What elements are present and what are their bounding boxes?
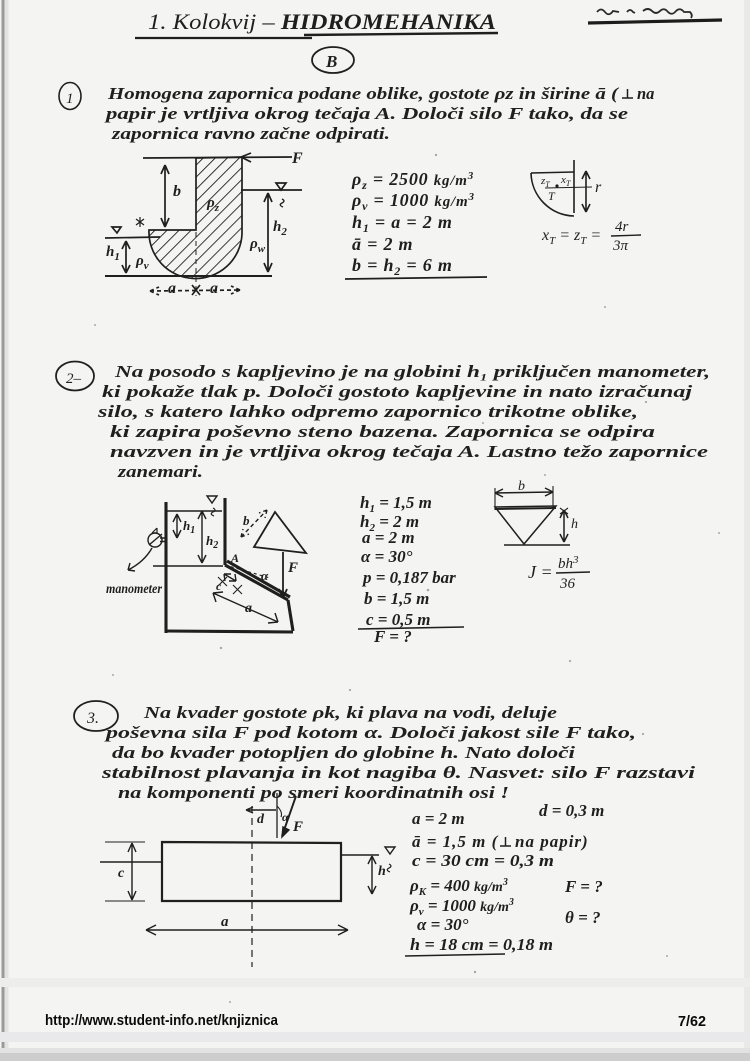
svg-text:3π: 3π (612, 238, 629, 254)
svg-text:papir je vrtljiva okrog tečaja: papir je vrtljiva okrog tečaja A. Določi… (103, 104, 628, 123)
svg-text:b: b (518, 479, 525, 494)
svg-text:manometer: manometer (106, 581, 163, 596)
svg-text:na papir): na papir) (515, 832, 589, 851)
svg-text:h: h (378, 864, 386, 879)
svg-text:stabilnost plavanja in kot nag: stabilnost plavanja in kot nagiba θ. Nas… (100, 763, 695, 782)
svg-text:zanemari.: zanemari. (117, 462, 203, 481)
svg-text:α = 30°: α = 30° (417, 915, 469, 934)
svg-text:F = ?: F = ? (564, 877, 603, 896)
svg-text:b: b (173, 183, 181, 200)
svg-text:ā = 2 m: ā = 2 m (352, 234, 413, 254)
svg-text:F: F (292, 819, 303, 835)
svg-text:poševna sila F pod kotom α. Do: poševna sila F pod kotom α. Določi jakos… (103, 723, 636, 742)
svg-text:F: F (287, 560, 298, 576)
svg-text:1: 1 (66, 91, 74, 107)
svg-text:a: a (221, 914, 229, 930)
svg-text:B: B (325, 52, 337, 71)
svg-text:J =: J = (528, 562, 553, 582)
svg-text:r: r (595, 179, 602, 196)
svg-text:Homogena zapornica podane obli: Homogena zapornica podane oblike, gostot… (107, 84, 620, 103)
svg-text:navzven in je vrtljiva okrog t: navzven in je vrtljiva okrog tečaja A. L… (110, 442, 708, 461)
svg-text:b = 1,5 m: b = 1,5 m (364, 589, 429, 608)
svg-text:c: c (216, 579, 222, 593)
svg-text:h: h (571, 517, 578, 532)
svg-text:da bo kvader potopljen do glob: da bo kvader potopljen do globine h. Nat… (112, 743, 576, 762)
svg-text:h = 18 cm = 0,18 m: h = 18 cm = 0,18 m (410, 935, 553, 954)
svg-text:ki pokaže tlak p. Določi gosto: ki pokaže tlak p. Določi gostoto kapljev… (102, 382, 693, 401)
svg-text:F: F (291, 150, 303, 167)
svg-text:na: na (637, 84, 654, 103)
svg-text:c = 30 cm = 0,3 m: c = 30 cm = 0,3 m (412, 851, 554, 870)
svg-text:Na posodo s kapljevino je na g: Na posodo s kapljevino je na globini h₁ … (114, 362, 710, 381)
svg-text:2–: 2– (66, 371, 82, 387)
svg-text:a = 2 m: a = 2 m (362, 528, 415, 547)
svg-text:d = 0,3 m: d = 0,3 m (539, 801, 604, 820)
svg-text:a: a (210, 280, 218, 297)
svg-text:p = 0,187 bar: p = 0,187 bar (361, 568, 456, 587)
svg-text:ā = 1,5 m (: ā = 1,5 m ( (412, 832, 499, 851)
svg-text:α: α (261, 568, 269, 583)
svg-text:d: d (257, 812, 265, 827)
svg-text:4r: 4r (615, 219, 629, 235)
svg-text:α = 30°: α = 30° (361, 547, 413, 566)
svg-text:θ = ?: θ = ? (565, 908, 601, 927)
svg-text:http://www.student-info.net/kn: http://www.student-info.net/knjiznica (45, 1013, 279, 1029)
svg-text:1. Kolokvij – HIDROMEHANIKA: 1. Kolokvij – HIDROMEHANIKA (148, 9, 496, 34)
svg-text:b: b (243, 513, 250, 528)
svg-text:Na kvader gostote ρk, ki plava: Na kvader gostote ρk, ki plava na vodi, … (143, 703, 557, 722)
svg-text:na komponenti po smeri koordin: na komponenti po smeri koordinatnih osi … (118, 783, 509, 802)
svg-text:ρv = 1000 kg/m3: ρv = 1000 kg/m3 (351, 190, 475, 213)
svg-text:α: α (282, 810, 289, 824)
svg-text:36: 36 (559, 576, 576, 592)
svg-text:a: a (168, 280, 176, 297)
svg-text:a: a (245, 601, 252, 616)
svg-text:silo, s katero lahko odpremo z: silo, s katero lahko odpremo zapornico t… (97, 402, 638, 421)
svg-text:ρz = 2500 kg/m3: ρz = 2500 kg/m3 (351, 169, 474, 192)
svg-text:3.: 3. (86, 710, 99, 727)
svg-text:7/62: 7/62 (678, 1013, 706, 1030)
svg-text:b = h2 = 6 m: b = h2 = 6 m (352, 255, 453, 278)
svg-text:zapornica ravno začne odpirati: zapornica ravno začne odpirati. (111, 124, 390, 143)
svg-text:A: A (230, 551, 239, 565)
svg-text:c: c (118, 866, 125, 881)
svg-text:F = ?: F = ? (373, 627, 412, 646)
svg-text:ki zapira poševno steno bazena: ki zapira poševno steno bazena. Zapornic… (110, 422, 655, 441)
svg-text:a = 2 m: a = 2 m (412, 809, 465, 828)
